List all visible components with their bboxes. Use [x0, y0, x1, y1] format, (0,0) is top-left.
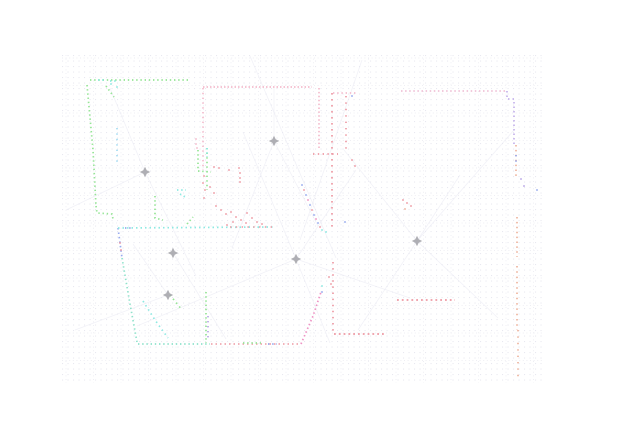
map-point: [239, 177, 241, 179]
map-point: [238, 167, 240, 169]
map-point: [239, 172, 241, 174]
map-point: [215, 205, 217, 207]
map-point: [523, 185, 525, 187]
map-viewport[interactable]: [0, 0, 634, 435]
map-point: [218, 167, 220, 169]
map-point: [251, 217, 253, 219]
map-point: [225, 213, 227, 215]
map-point: [313, 214, 315, 216]
map-point: [406, 202, 408, 204]
map-point: [110, 83, 112, 85]
map-point: [239, 181, 241, 183]
map-point: [261, 223, 263, 225]
map-point: [536, 189, 538, 191]
map-point: [328, 276, 330, 278]
map-point: [351, 95, 353, 97]
map-point: [321, 285, 323, 287]
map-point: [404, 208, 406, 210]
map-point: [195, 143, 197, 145]
map-point: [203, 175, 205, 177]
map-point: [305, 194, 307, 196]
map-point: [116, 86, 118, 88]
map-point: [204, 189, 206, 191]
map-point: [256, 221, 258, 223]
map-point: [120, 249, 122, 251]
map-point: [213, 166, 215, 168]
map-point: [196, 147, 198, 149]
map-point: [228, 169, 230, 171]
map-point: [246, 212, 248, 214]
map-point: [119, 242, 121, 244]
map-point: [230, 211, 232, 213]
map-point: [330, 283, 332, 285]
map-point: [202, 182, 204, 184]
map-point: [307, 199, 309, 201]
map-point: [245, 222, 247, 224]
map-point: [301, 184, 303, 186]
map-point: [317, 222, 319, 224]
map-point: [235, 216, 237, 218]
map-point: [209, 186, 211, 188]
map-point: [520, 178, 522, 180]
map-point: [303, 189, 305, 191]
map-point: [351, 159, 353, 161]
wall-corridor: [118, 227, 273, 228]
map-point: [354, 165, 356, 167]
grid-dots: [62, 55, 543, 383]
map-point: [220, 209, 222, 211]
map-point: [213, 192, 215, 194]
map-point: [226, 224, 228, 226]
lidar-map-canvas: [0, 0, 634, 435]
map-point: [203, 197, 205, 199]
map-point: [321, 291, 323, 293]
map-point: [319, 226, 321, 228]
map-point: [240, 219, 242, 221]
map-point: [195, 138, 197, 140]
map-point: [402, 199, 404, 201]
map-point: [232, 221, 234, 223]
map-point: [325, 231, 327, 233]
map-point: [410, 205, 412, 207]
map-point: [311, 209, 313, 211]
map-point: [344, 221, 346, 223]
map-point: [309, 204, 311, 206]
map-point: [321, 229, 323, 231]
map-point: [315, 218, 317, 220]
